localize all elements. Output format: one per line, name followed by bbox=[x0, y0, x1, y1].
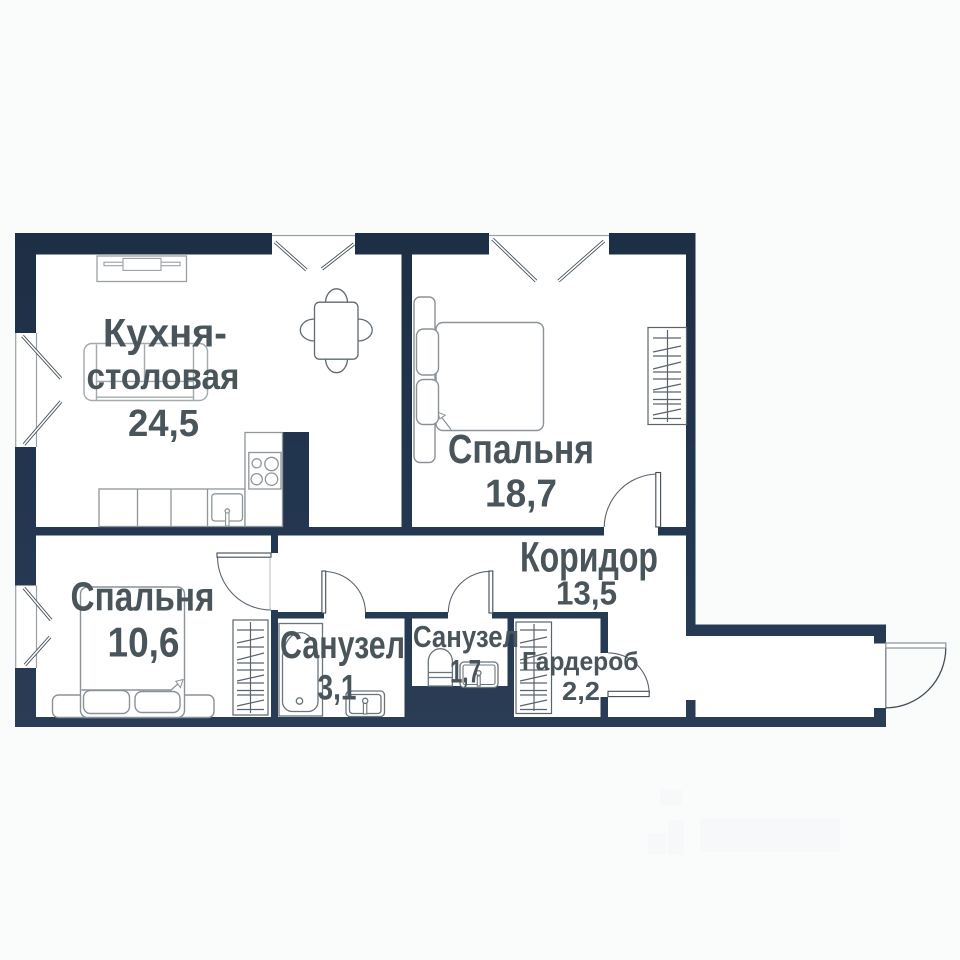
svg-text:Кухня-: Кухня- bbox=[103, 312, 227, 356]
svg-text:Санузел: Санузел bbox=[413, 619, 519, 654]
svg-text:Спальня: Спальня bbox=[448, 426, 594, 472]
svg-text:Гардероб: Гардероб bbox=[522, 646, 639, 676]
svg-text:Санузел: Санузел bbox=[280, 624, 405, 667]
svg-text:10,6: 10,6 bbox=[108, 619, 180, 666]
svg-text:18,7: 18,7 bbox=[485, 473, 557, 516]
svg-text:2,2: 2,2 bbox=[562, 676, 600, 706]
svg-text:24,5: 24,5 bbox=[128, 403, 199, 445]
svg-text:Спальня: Спальня bbox=[71, 574, 215, 620]
svg-text:3,1: 3,1 bbox=[318, 669, 357, 708]
svg-text:столовая: столовая bbox=[87, 356, 240, 397]
svg-text:13,5: 13,5 bbox=[556, 575, 617, 612]
svg-text:1,7: 1,7 bbox=[450, 654, 481, 690]
